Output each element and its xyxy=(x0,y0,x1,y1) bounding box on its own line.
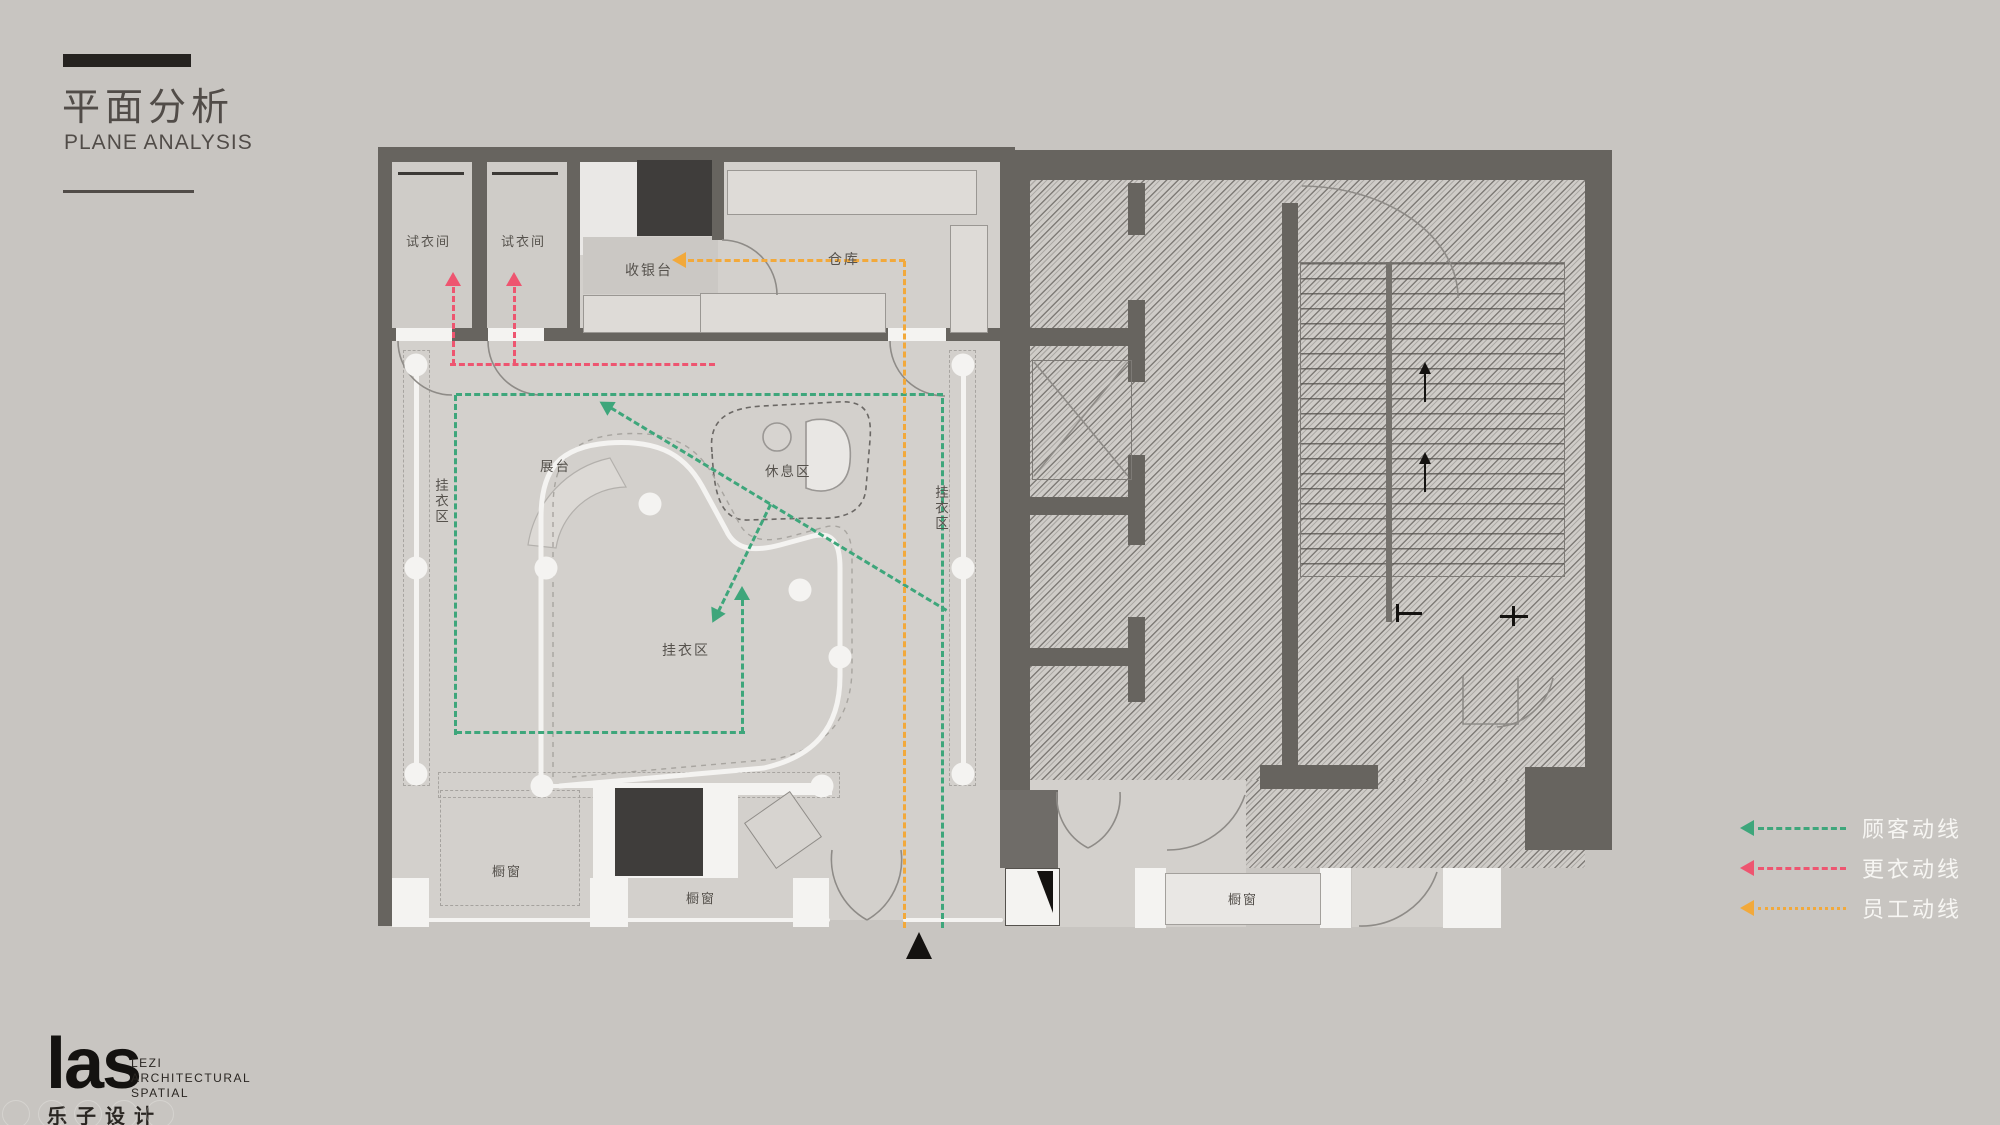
level-marker-1-v xyxy=(1396,604,1399,622)
core-bottom-bar xyxy=(1260,765,1378,789)
customer-line-top-horizontal xyxy=(456,393,943,396)
stair-arrow-2-shaft xyxy=(1424,462,1426,492)
staff-line-horizontal xyxy=(688,259,905,262)
watermark-dot-1 xyxy=(2,1100,30,1125)
dark-cabinet-top xyxy=(637,160,712,236)
legend-line-customer xyxy=(1758,827,1846,830)
window-center-dark-panel xyxy=(615,788,703,876)
page-title: 平面分析 xyxy=(62,76,234,131)
changing-line-horizontal xyxy=(450,363,715,366)
elevator-shaft xyxy=(1032,360,1132,480)
logo-subtext-line3: SPATIAL xyxy=(131,1086,251,1101)
wall-shop-core-shared xyxy=(1000,162,1030,790)
staff-line-vertical xyxy=(903,261,906,928)
lobby-dark-block xyxy=(1000,790,1058,868)
column-5 xyxy=(1320,868,1351,928)
entry-marker xyxy=(906,932,932,959)
customer-line-right-vertical xyxy=(941,398,944,928)
changing-line-v1 xyxy=(452,287,455,365)
wall-cashier-storage-upper xyxy=(712,160,724,240)
watermark-dot-4 xyxy=(110,1100,138,1125)
core-hbar-1 xyxy=(1015,328,1145,346)
changing-line-v2 xyxy=(513,287,516,365)
level-marker-1-h xyxy=(1396,612,1422,615)
door-gap-storage xyxy=(888,328,946,341)
column-6 xyxy=(1443,868,1501,928)
label-window-left: 橱窗 xyxy=(492,861,522,880)
plane-analysis-slide: 平面分析 PLANE ANALYSIS xyxy=(0,0,2000,1125)
label-hanging-center: 挂衣区 xyxy=(662,640,710,660)
column-4 xyxy=(1135,868,1166,928)
stair-arrow-2-head xyxy=(1419,452,1431,464)
title-top-bar xyxy=(63,54,191,67)
page-subtitle: PLANE ANALYSIS xyxy=(64,131,253,155)
storefront-line-left xyxy=(392,918,830,922)
wall-between-fitting xyxy=(472,162,487,340)
fitting-bench-1 xyxy=(398,172,464,175)
changing-arrow-2 xyxy=(506,272,522,286)
core-hbar-3 xyxy=(1015,648,1145,666)
label-fitting-room-2: 试衣间 xyxy=(501,231,546,250)
section-marker-wedge xyxy=(1037,871,1053,913)
stair-stringer xyxy=(1386,262,1392,622)
label-fitting-room-1: 试衣间 xyxy=(406,231,451,250)
legend-row-staff: 员工动线 xyxy=(1740,895,1962,921)
cashier-front-shelf xyxy=(583,295,718,333)
door-gap-fitting-2 xyxy=(488,328,544,341)
staff-arrow-left xyxy=(672,252,686,268)
logo-subtext-line1: LEZI xyxy=(131,1056,251,1071)
watermark-dot-2 xyxy=(38,1100,66,1125)
title-block: 平面分析 PLANE ANALYSIS xyxy=(0,0,400,220)
logo-mark: las xyxy=(46,1028,140,1100)
changing-arrow-1 xyxy=(445,272,461,286)
wall-core-top xyxy=(1015,150,1612,180)
legend-line-changing xyxy=(1758,867,1846,870)
legend-arrow-changing xyxy=(1740,860,1754,876)
customer-line-inner-vertical xyxy=(741,600,744,733)
storefront-line-right xyxy=(903,918,1003,922)
hanging-rail-right xyxy=(961,362,966,776)
label-rest-area: 休息区 xyxy=(765,460,812,480)
label-window-center: 橱窗 xyxy=(686,888,716,907)
watermark-dot-5 xyxy=(146,1100,174,1125)
wall-shop-left xyxy=(378,147,392,926)
logo-subtext: LEZI ARCHITECTURAL SPATIAL xyxy=(131,1056,251,1101)
label-hanging-left: 挂衣区 xyxy=(430,478,450,525)
storage-tall-cabinet xyxy=(950,225,988,333)
title-rule xyxy=(63,190,194,193)
wall-right-of-fitting xyxy=(567,162,580,340)
legend-label-changing: 更衣动线 xyxy=(1862,852,1962,884)
legend-arrow-staff xyxy=(1740,900,1754,916)
legend-label-customer: 顾客动线 xyxy=(1862,812,1962,844)
storage-top-shelf xyxy=(727,170,977,215)
core-hbar-2 xyxy=(1015,497,1145,515)
door-gap-fitting-1 xyxy=(396,328,452,341)
label-hanging-right: 挂衣区 xyxy=(930,485,950,532)
window-left-outline xyxy=(440,790,580,906)
label-storage: 仓库 xyxy=(828,249,860,269)
core-vwall-seg1 xyxy=(1128,183,1145,235)
level-marker-2-v xyxy=(1512,606,1515,626)
right-door-floor xyxy=(1352,868,1443,927)
storage-low-shelf xyxy=(700,293,886,333)
watermark-dot-3 xyxy=(74,1100,102,1125)
customer-line-bottom-horizontal xyxy=(456,731,745,734)
legend-row-customer: 顾客动线 xyxy=(1740,815,1962,841)
label-cashier: 收银台 xyxy=(625,260,673,280)
stair-arrow-1-head xyxy=(1419,362,1431,374)
wall-core-right xyxy=(1585,150,1612,850)
legend-row-changing: 更衣动线 xyxy=(1740,855,1962,881)
stair-treads xyxy=(1300,262,1565,577)
customer-arrow-inner-up xyxy=(734,586,750,600)
legend-arrow-customer xyxy=(1740,820,1754,836)
legend-label-staff: 员工动线 xyxy=(1862,892,1962,924)
hanging-rail-left xyxy=(414,362,419,776)
wall-core-bottom-right-mass xyxy=(1525,767,1612,850)
legend-line-staff xyxy=(1758,907,1846,910)
logo-subtext-line2: ARCHITECTURAL xyxy=(131,1071,251,1086)
stair-arrow-1-shaft xyxy=(1424,372,1426,402)
label-window-right: 橱窗 xyxy=(1228,889,1258,908)
fitting-bench-2 xyxy=(492,172,558,175)
core-center-wall xyxy=(1282,203,1298,780)
label-display-stand: 展台 xyxy=(540,455,571,475)
customer-line-left-vertical xyxy=(454,395,457,735)
